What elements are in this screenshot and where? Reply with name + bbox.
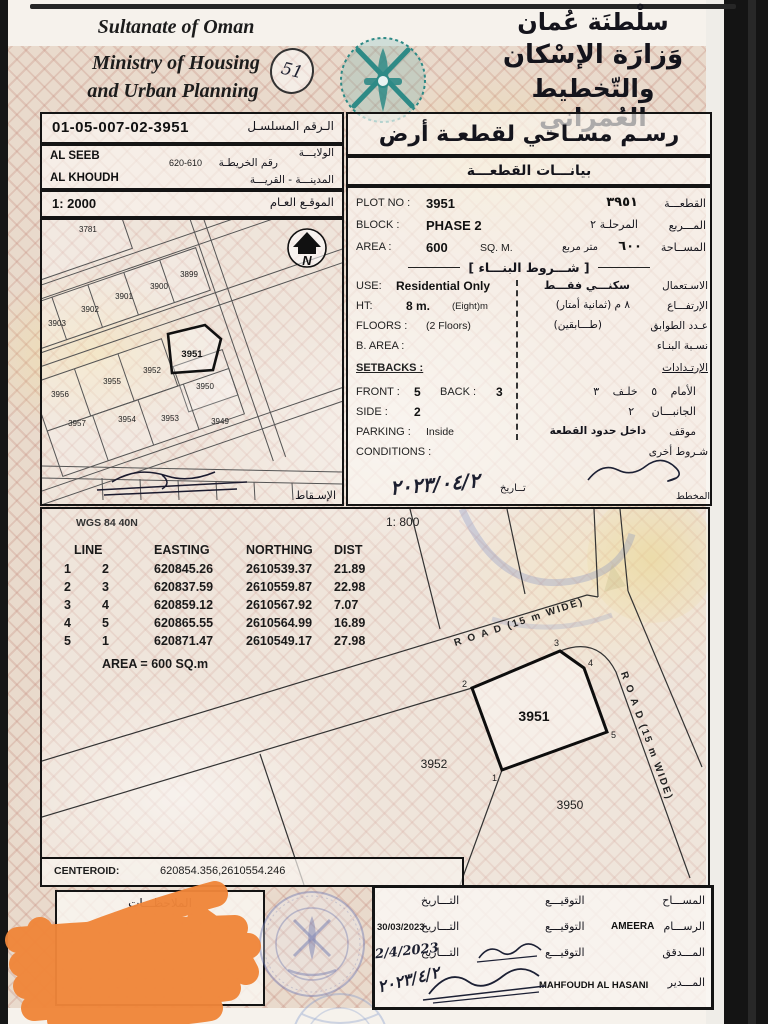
svg-text:3952: 3952 (421, 757, 448, 771)
map-number-label: رقم الخريطـة (219, 157, 278, 169)
plot-no-value: 3951 (426, 196, 455, 211)
use-label-ar: الاسـتعمال (662, 280, 708, 292)
approval-date-label: تــاريخ (500, 483, 526, 494)
approval-date-handwritten: ٢٠٢٣/٠٤/٢ (389, 468, 481, 500)
town-label: المدينـــة - القريـــة (250, 174, 334, 186)
parking-label-ar: موقف (669, 426, 696, 438)
town-value: AL KHOUDH (50, 172, 119, 184)
height-value-ar: ٨ م (ثمانية أمتار) (556, 299, 630, 311)
svg-text:3951: 3951 (518, 708, 549, 724)
svg-text:N: N (302, 253, 312, 268)
draftsman-date-label: التـــاريخ (421, 920, 459, 933)
plot-detail-drawing: 2 3 4 5 1 3951 3952 3950 R O A D (15 m W… (42, 509, 708, 885)
survey-detail-box: WGS 84 40N 1: 800 LINE EASTING NORTHING … (40, 507, 710, 887)
svg-text:3955: 3955 (103, 377, 121, 386)
area-label-ar: المســاحة (661, 241, 706, 254)
svg-text:3957: 3957 (68, 419, 86, 428)
height-label-ar: الإرتفـــاع (667, 300, 708, 312)
svg-text:3951: 3951 (181, 349, 203, 360)
svg-text:3899: 3899 (180, 270, 198, 279)
side-label: SIDE : (356, 406, 388, 418)
ministry-name-en-line2: and Urban Planning (68, 80, 278, 103)
svg-text:R O A D (15 m WIDE): R O A D (15 m WIDE) (453, 596, 586, 649)
svg-text:3: 3 (554, 638, 559, 648)
parking-value: Inside (426, 426, 454, 438)
checker-role-label: المـــدقق (662, 946, 705, 959)
back-label: BACK : (440, 386, 476, 398)
building-conditions-header: [ شـــروط البنـــاء ] (468, 260, 589, 275)
draftsman-date: 30/03/2023 (377, 922, 425, 933)
area-label: AREA : (356, 241, 391, 253)
director-name: MAHFOUDH AL HASANI (539, 980, 648, 991)
area-unit: SQ. M. (480, 242, 513, 254)
svg-text:3902: 3902 (81, 305, 99, 314)
parking-label: PARKING : (356, 426, 411, 438)
floors-value: (2 Floors) (426, 320, 471, 332)
setbacks-label-ar: الإرتـدادات (662, 362, 708, 374)
projection-label: الإسـقاط (295, 489, 336, 502)
built-area-label: B. AREA : (356, 340, 404, 352)
location-box: AL SEEB AL KHOUDH الولايـــة 620-610 رقم… (40, 144, 344, 190)
wilaya-label: الولايـــة (299, 147, 334, 159)
site-scale-value: 1: 2000 (52, 196, 96, 211)
side-ar: الجانبـــان ٢ (628, 405, 696, 418)
signatures-box: المســـاح التوقيـــع التـــاريخ الرســـا… (372, 885, 714, 1010)
serial-number-label: الـرقم المسلسـل (247, 119, 334, 133)
director-role-label: المـــدير (668, 976, 705, 989)
height-value: 8 m. (406, 299, 430, 313)
surveyor-date-label: التـــاريخ (421, 894, 459, 907)
drawing-title: رسـم مسـاحي لقطعـة أرض (379, 122, 680, 147)
draftsman-sign-label: التوقيـــع (545, 920, 585, 933)
svg-text:3953: 3953 (161, 414, 179, 423)
back-value: 3 (496, 385, 503, 399)
country-name-ar: سلْطنَة عُمان (478, 8, 708, 36)
plot-no-label: PLOT NO : (356, 197, 410, 209)
svg-text:3950: 3950 (196, 382, 214, 391)
height-label: HT: (356, 300, 373, 312)
column-divider (516, 280, 518, 440)
centeroid-label: CENTEROID: (54, 865, 119, 877)
projection-signature (97, 472, 247, 495)
building-conditions-header-row: [ شـــروط البنـــاء ] (348, 260, 710, 275)
site-scale-label: الموقـع العـام (270, 195, 334, 209)
front-back-ar: الأمام ٥ خلـف ٣ (593, 385, 696, 398)
svg-text:5: 5 (611, 730, 616, 740)
country-name-en: Sultanate of Oman (76, 16, 276, 39)
wilaya-value: AL SEEB (50, 150, 100, 162)
planner-label: المخطط (676, 491, 710, 502)
use-label: USE: (356, 280, 382, 292)
use-value-ar: سكنـــي فقـــط (544, 279, 630, 292)
map-number-value: 620-610 (169, 158, 202, 168)
checker-sign-label: التوقيـــع (545, 946, 585, 959)
parking-value-ar: داخل حدود القطعة (550, 425, 646, 437)
setbacks-label: SETBACKS : (356, 362, 423, 374)
area-value: 600 (426, 240, 448, 255)
svg-text:3781: 3781 (79, 225, 97, 234)
built-area-label-ar: نسـبة البنـاء (657, 340, 708, 352)
front-value: 5 (414, 385, 421, 399)
svg-text:3900: 3900 (150, 282, 168, 291)
area-unit-ar: متر مربع (562, 242, 598, 253)
drawing-title-box: رسـم مسـاحي لقطعـة أرض (346, 112, 712, 156)
site-map-drawing: 3781 3899 3900 3901 3902 3903 3952 3950 … (42, 220, 342, 504)
parcel-data-header: بيانـــات القطعـــة (467, 163, 592, 179)
north-arrow-icon: N (288, 229, 326, 268)
floors-value-ar: (طـــابقين) (554, 319, 602, 331)
block-label-ar: المـــربع (669, 219, 706, 232)
surveyor-sign-label: التوقيـــع (545, 894, 585, 907)
svg-text:2: 2 (462, 679, 467, 689)
draftsman-name: AMEERA (611, 921, 654, 932)
area-value-ar: ٦٠٠ (618, 239, 642, 254)
height-note: (Eight)m (452, 301, 488, 312)
floors-label-ar: عـدد الطوابق (650, 320, 708, 332)
plot-no-label-ar: القطعـــة (664, 197, 706, 210)
photo-dark-edge (724, 0, 768, 1024)
svg-text:4: 4 (588, 658, 593, 668)
ministry-name-en-line1: Ministry of Housing (76, 52, 276, 75)
parcel-data-header-box: بيانـــات القطعـــة (346, 156, 712, 186)
svg-text:3956: 3956 (51, 390, 69, 399)
checker-signature (475, 942, 545, 964)
svg-text:3950: 3950 (557, 798, 584, 812)
parcel-details-box: PLOT NO : 3951 ٣٩٥١ القطعـــة BLOCK : PH… (346, 186, 712, 506)
scanned-survey-document: { "header": { "country_en": "Sultanate o… (0, 0, 768, 1024)
conditions-label: CONDITIONS : (356, 446, 431, 458)
surveyor-role-label: المســـاح (662, 894, 705, 907)
checker-date-handwritten: 2/4/2023 (374, 941, 439, 963)
front-label: FRONT : (356, 386, 400, 398)
svg-text:3903: 3903 (48, 319, 66, 328)
svg-text:1: 1 (492, 773, 497, 783)
svg-text:R O A D (15 m WIDE): R O A D (15 m WIDE) (618, 670, 675, 802)
svg-text:3949: 3949 (211, 417, 229, 426)
header: Sultanate of Oman Ministry of Housing an… (8, 8, 708, 112)
site-map-box: 3781 3899 3900 3901 3902 3903 3952 3950 … (40, 218, 344, 506)
ministry-name-ar-line1: وَزارَة الإسْكان (478, 40, 708, 70)
use-value: Residential Only (396, 279, 490, 293)
centeroid-value: 620854.356,2610554.246 (160, 865, 285, 877)
planner-signature (580, 454, 690, 494)
block-label: BLOCK : (356, 219, 399, 231)
svg-text:3952: 3952 (143, 366, 161, 375)
site-scale-box: 1: 2000 الموقـع العـام (40, 190, 344, 218)
draftsman-role-label: الرســـام (663, 920, 705, 933)
orange-marker-scribble (0, 880, 360, 1024)
serial-number-value: 01-05-007-02-3951 (52, 119, 189, 136)
svg-text:3954: 3954 (118, 415, 136, 424)
block-value-ar: المرحلـة ٢ (590, 218, 638, 231)
plot-no-value-ar: ٣٩٥١ (606, 195, 638, 210)
photo-edge-band (748, 0, 756, 1024)
svg-text:3901: 3901 (115, 292, 133, 301)
block-value: PHASE 2 (426, 218, 482, 233)
side-value: 2 (414, 405, 421, 419)
serial-number-box: 01-05-007-02-3951 الـرقم المسلسـل (40, 112, 344, 144)
floors-label: FLOORS : (356, 320, 407, 332)
